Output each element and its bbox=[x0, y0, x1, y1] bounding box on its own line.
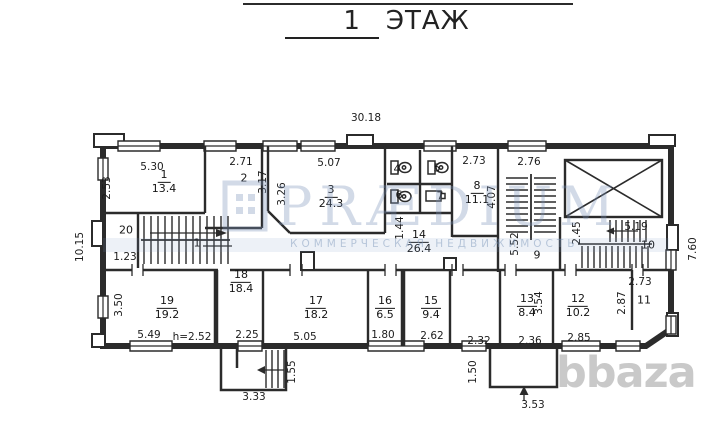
room-12-label: 1210.2 bbox=[566, 293, 591, 319]
room-2-label: 2 bbox=[238, 173, 251, 186]
dim-2-36: 2.36 bbox=[518, 336, 541, 347]
flue-stubs bbox=[301, 252, 456, 270]
room-16-label: 166.5 bbox=[375, 295, 395, 321]
dim-2-73-a: 2.73 bbox=[462, 156, 485, 167]
room-20-label: 20 bbox=[116, 225, 136, 238]
room-8-label: 811.1 bbox=[465, 180, 490, 206]
dim-3-26: 3.26 bbox=[277, 182, 288, 205]
room-15-label: 159.4 bbox=[421, 295, 441, 321]
room-3-label: 324.3 bbox=[319, 184, 344, 210]
room-17-label: 1718.2 bbox=[304, 295, 329, 321]
dim-1-50: 1.50 bbox=[468, 360, 479, 383]
praedium-watermark-tagline: КОММЕРЧЕСКАЯ НЕДВИЖИМОСТЬ bbox=[290, 238, 578, 250]
dim-3-17: 3.17 bbox=[258, 170, 269, 193]
dim-2-25: 2.25 bbox=[235, 330, 258, 341]
room-13-label: 138.4 bbox=[517, 293, 537, 319]
dim-2-76: 2.76 bbox=[517, 157, 540, 168]
dim-2-62: 2.62 bbox=[420, 331, 443, 342]
dim-2-73-b: 2.73 bbox=[628, 277, 651, 288]
dim-1-80: 1.80 bbox=[371, 330, 394, 341]
dim-5-49: 5.49 bbox=[137, 330, 160, 341]
dim-5-05: 5.05 bbox=[293, 332, 316, 343]
room-5-label: 5 bbox=[431, 163, 444, 176]
building-height-left: 10.15 bbox=[75, 232, 86, 262]
bay-steps bbox=[257, 350, 284, 388]
dim-2-71: 2.71 bbox=[229, 157, 252, 168]
room-19-label: 1919.2 bbox=[155, 295, 180, 321]
bbaza-watermark: bbaza bbox=[556, 352, 696, 395]
dim-5-19: 5.19 bbox=[624, 222, 647, 233]
dim-3-33: 3.33 bbox=[242, 392, 265, 403]
room-1-label: 113.4 bbox=[152, 169, 177, 195]
dim-2-85: 2.85 bbox=[567, 333, 590, 344]
staircase-right-hall bbox=[506, 174, 556, 240]
dim-1-23: 1.23 bbox=[113, 252, 136, 263]
dim-1-55: 1.55 bbox=[287, 360, 298, 383]
dim-2-87: 2.87 bbox=[617, 291, 628, 314]
room-6-label: 6 bbox=[393, 190, 406, 203]
dim-1-44: 1.44 bbox=[395, 216, 406, 239]
dim-2-53: 2.53 bbox=[102, 176, 113, 199]
dim-h-2-52: h=2.52 bbox=[173, 332, 212, 343]
dim-2-32: 2.32 bbox=[467, 336, 490, 347]
elevator-shaft bbox=[565, 160, 662, 217]
dim-3-53: 3.53 bbox=[521, 400, 544, 411]
room-18-label: 1818.4 bbox=[229, 269, 254, 295]
floor-plan-page: 1ЭТАЖ bbox=[0, 0, 709, 425]
dim-5-07: 5.07 bbox=[317, 158, 340, 169]
building-width: 30.18 bbox=[351, 113, 381, 124]
dim-3-50: 3.50 bbox=[114, 293, 125, 316]
building-height-right: 7.60 bbox=[688, 237, 699, 260]
room-7-label: 7 bbox=[434, 191, 447, 204]
room-4-label: 4 bbox=[391, 164, 404, 177]
room-11-label: 11 bbox=[634, 295, 654, 308]
